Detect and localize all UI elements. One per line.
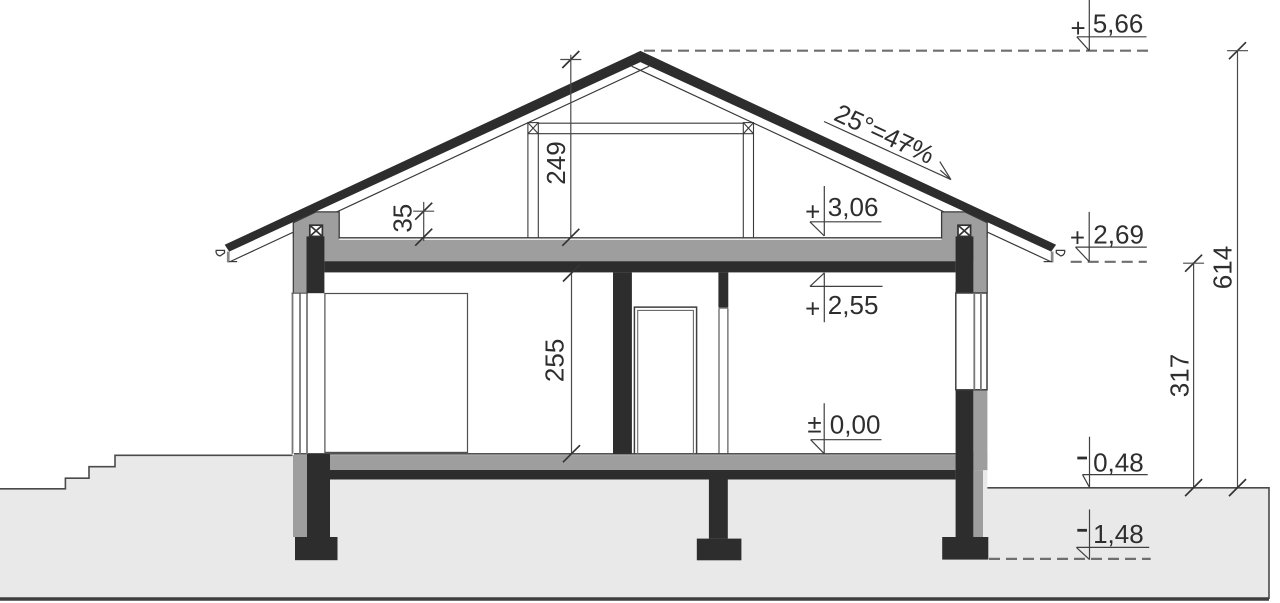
svg-text:2,69: 2,69: [1093, 220, 1144, 250]
svg-text:249: 249: [541, 141, 571, 184]
svg-text:+: +: [805, 196, 820, 226]
svg-text:317: 317: [1165, 354, 1195, 397]
svg-text:0,48: 0,48: [1093, 447, 1144, 477]
svg-text:3,06: 3,06: [828, 192, 879, 222]
svg-text:±: ±: [807, 408, 821, 438]
svg-text:+: +: [1070, 223, 1085, 253]
svg-text:35: 35: [387, 204, 417, 233]
svg-text:25°=47%: 25°=47%: [830, 98, 939, 170]
svg-text:614: 614: [1208, 246, 1238, 289]
svg-text:5,66: 5,66: [1093, 9, 1144, 39]
svg-text:+: +: [805, 294, 820, 324]
svg-text:1,48: 1,48: [1093, 519, 1144, 549]
svg-text:+: +: [1071, 13, 1086, 43]
svg-text:255: 255: [540, 339, 570, 382]
svg-text:2,55: 2,55: [828, 290, 879, 320]
svg-text:0,00: 0,00: [830, 410, 881, 440]
